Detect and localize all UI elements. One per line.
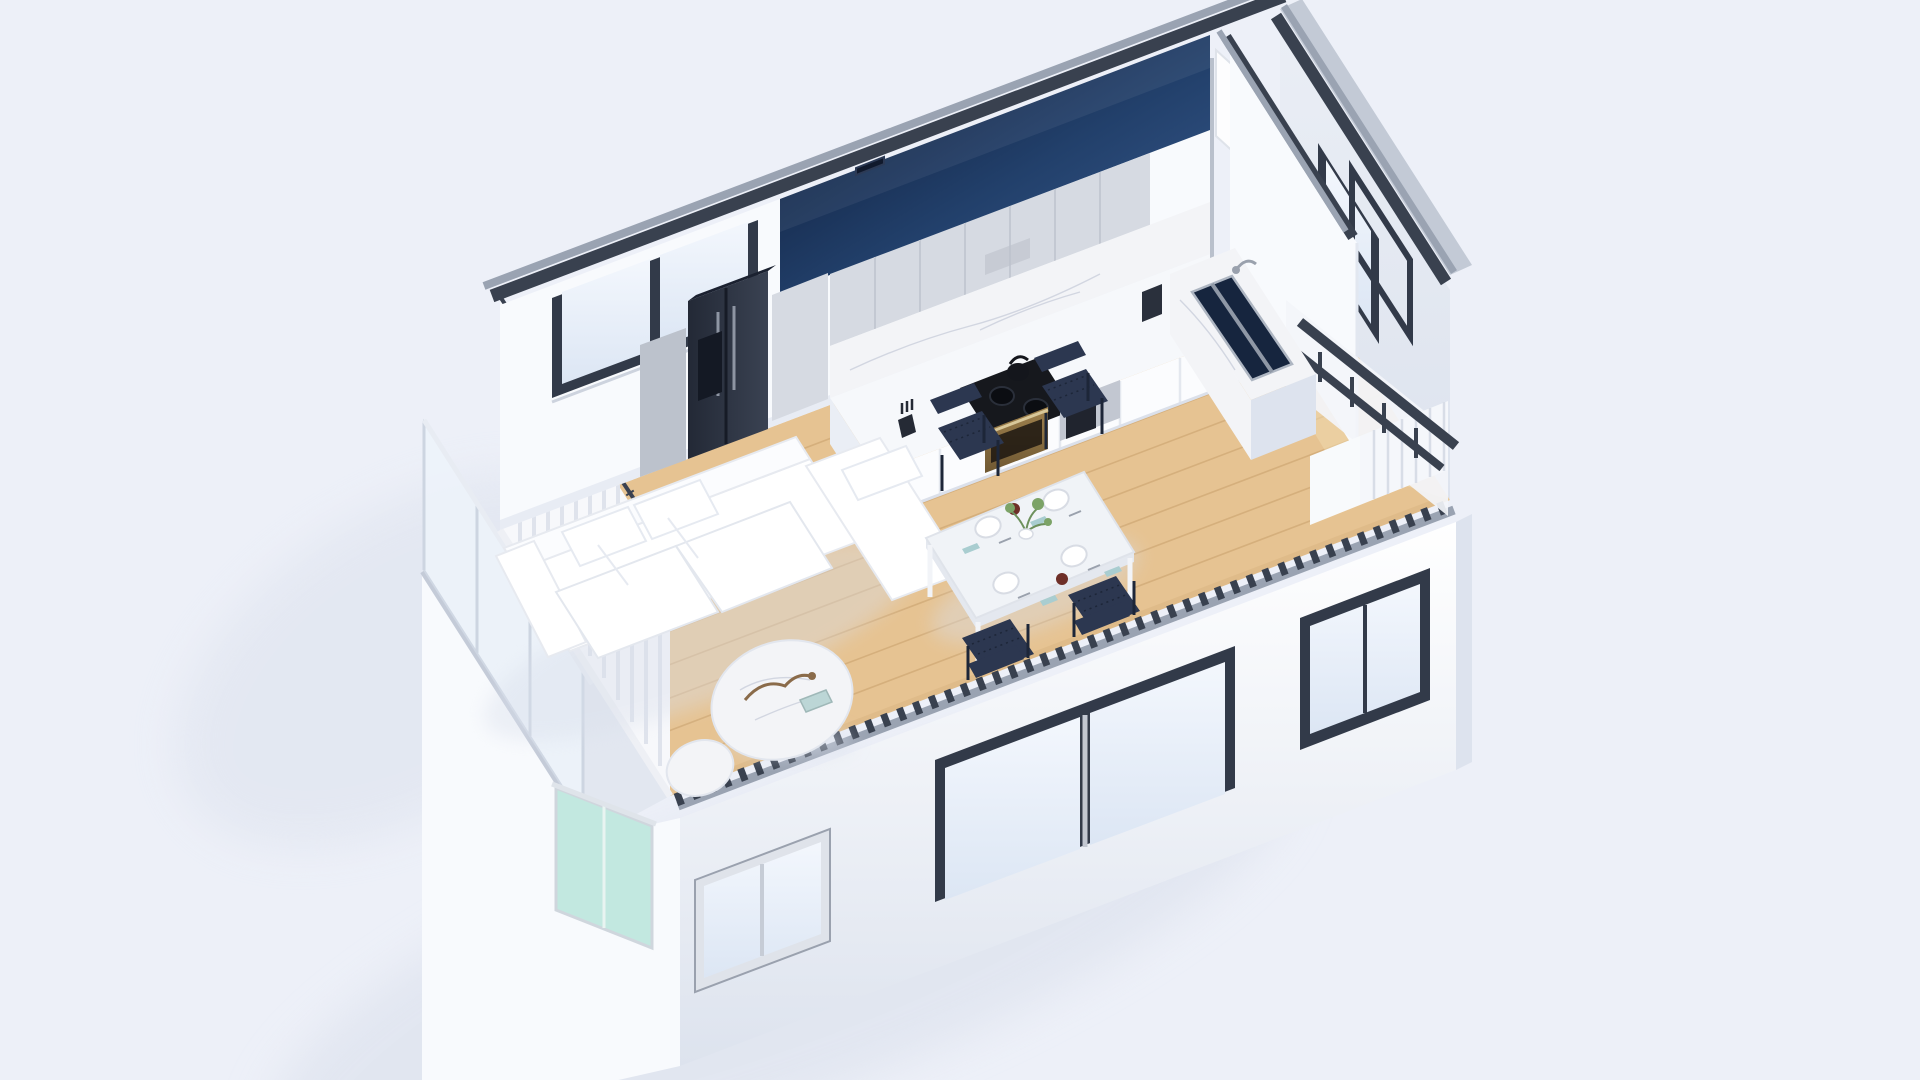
leaf (1044, 518, 1052, 526)
branch-berries (808, 672, 816, 680)
tall-cabinet-left (640, 328, 686, 477)
bowl (1056, 573, 1068, 585)
floorplan-svg: Isometric cutaway 3D render of a small m… (0, 0, 1920, 1080)
leaf (1005, 503, 1015, 513)
floorplan-render: Isometric cutaway 3D render of a small m… (0, 0, 1920, 1080)
tall-cabinet-right (772, 273, 828, 421)
fridge-dispenser (698, 331, 722, 401)
kettle (1007, 363, 1029, 381)
refrigerator (688, 265, 776, 459)
vase (1019, 529, 1033, 539)
exterior-right-cap (1456, 514, 1472, 770)
leaf (1032, 498, 1044, 510)
burner (990, 387, 1014, 405)
